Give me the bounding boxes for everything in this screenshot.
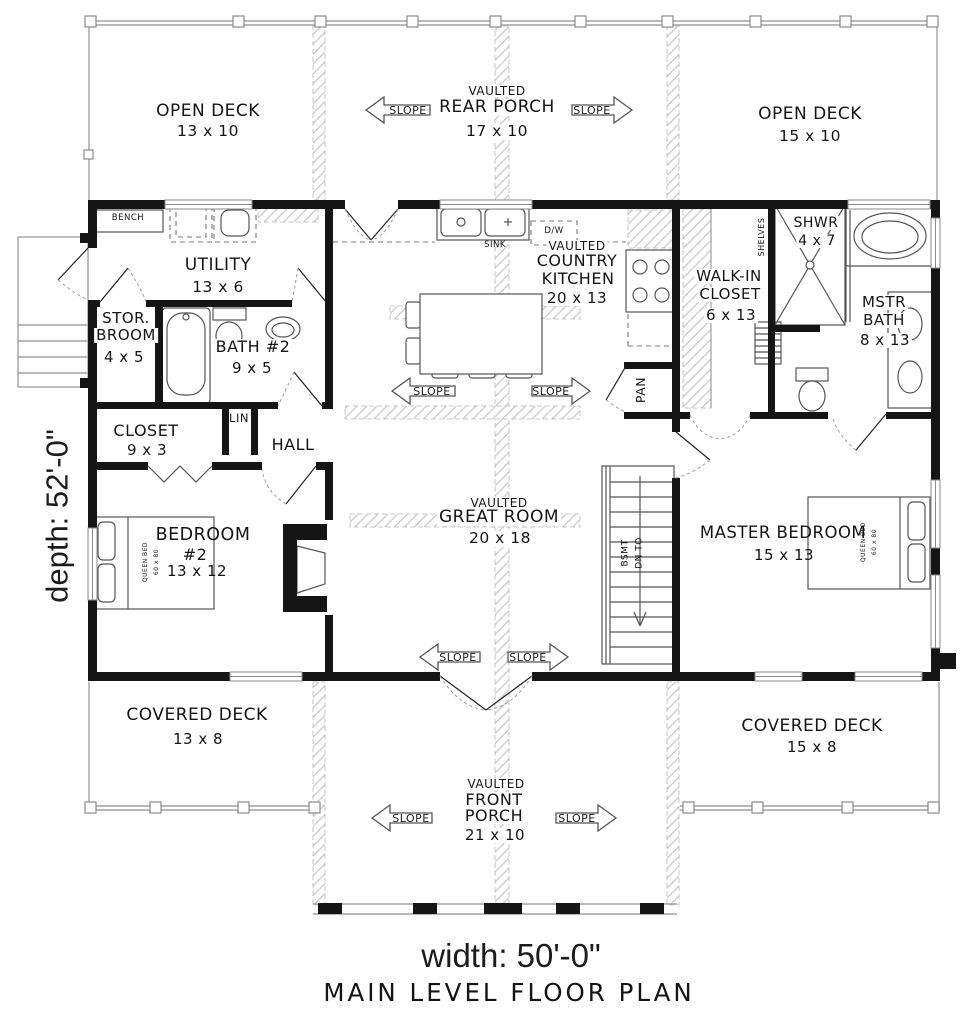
label-open-deck-left: OPEN DECK: [154, 103, 262, 120]
label-bedroom2-line1: BEDROOM: [156, 527, 251, 545]
label-open-deck-left-size: 13 x 10: [175, 124, 241, 140]
label-hall: HALL: [270, 437, 317, 453]
pantry-door-icon: [606, 366, 626, 400]
bathtub-icon: [162, 308, 210, 404]
label-walkin-line2: CLOSET: [697, 287, 762, 302]
label-covered-deck-left: COVERED DECK: [124, 707, 269, 724]
slope-label: SLOPE: [413, 385, 450, 398]
slope-label: SLOPE: [509, 651, 546, 664]
bed-note-line1: QUEEN BED: [859, 522, 870, 562]
label-front-porch-size: 21 x 10: [463, 828, 527, 843]
slope-label: SLOPE: [573, 104, 610, 117]
stairs-note-line2: DN TO: [633, 537, 647, 569]
label-shower: SHWR: [792, 216, 841, 230]
label-stor-size: 4 x 5: [102, 350, 146, 365]
label-stairs: BSMT DN TO: [619, 537, 648, 569]
toilet-icon: [213, 308, 246, 320]
chair-icon: [406, 338, 421, 364]
stairs-note-line1: BSMT: [619, 537, 633, 569]
label-bedroom2-size: 13 x 12: [167, 564, 227, 579]
label-bench: BENCH: [112, 214, 144, 223]
label-utility-size: 13 x 6: [190, 280, 246, 296]
label-mstr-bath-line1: MSTR: [860, 295, 908, 310]
label-front-porch-prefix: VAULTED: [465, 778, 526, 790]
label-closet: CLOSET: [111, 423, 180, 439]
label-walkin-size: 6 x 13: [704, 308, 758, 323]
label-rear-porch-size: 17 x 10: [464, 124, 530, 140]
label-master-bed-note: QUEEN BED 60 x 80: [859, 522, 881, 562]
slope-label: SLOPE: [389, 104, 426, 117]
label-mstr-bath-size: 8 x 13: [858, 333, 912, 348]
kitchen-sink-icon: [437, 206, 529, 240]
label-rear-porch-prefix: VAULTED: [466, 85, 527, 97]
slope-label: SLOPE: [558, 812, 595, 825]
label-stor-line2: BROOM: [94, 328, 158, 343]
label-great-room-size: 20 x 18: [467, 531, 533, 547]
label-master-bedroom: MASTER BEDROOM: [700, 525, 866, 542]
label-bed2-note: QUEEN BED 60 x 80: [141, 542, 163, 582]
rear-door-icon: [345, 209, 371, 240]
label-great-room: GREAT ROOM: [437, 509, 561, 526]
label-stor-line1: STOR.: [100, 311, 152, 326]
chair-icon: [406, 302, 421, 328]
doors: [58, 209, 886, 710]
label-walkin-line1: WALK-IN: [694, 269, 763, 284]
label-bedroom2-line2: #2: [183, 547, 208, 563]
side-door-icon: [58, 248, 88, 280]
range-icon: [626, 250, 678, 312]
dining-table-icon: [420, 294, 542, 374]
depth-dimension-label: depth: 52'-0": [42, 429, 73, 603]
label-dishwasher: D/W: [544, 227, 563, 236]
label-linen: LIN: [229, 413, 249, 425]
label-kitchen-size: 20 x 13: [545, 291, 609, 306]
label-covered-deck-left-size: 13 x 8: [171, 732, 225, 747]
toilet-icon: [796, 368, 828, 381]
label-shelves: SHELVES: [758, 218, 766, 257]
label-open-deck-right: OPEN DECK: [756, 106, 864, 123]
front-door-icon: [440, 676, 486, 710]
bed-note-line2: 60 x 80: [870, 522, 881, 562]
label-rear-porch: REAR PORCH: [437, 99, 557, 116]
sink-icon: [898, 361, 922, 393]
floor-plan: SLOPE SLOPE SLOPE SLOPE SLOPE SLOPE SLOP…: [0, 0, 960, 1024]
label-kitchen-line1: COUNTRY: [535, 253, 620, 269]
bifold-door-icon: [148, 466, 212, 482]
label-sink: SINK: [484, 241, 506, 250]
label-front-porch-line2: PORCH: [463, 808, 525, 824]
label-shower-size: 4 x 7: [796, 234, 838, 248]
label-open-deck-right-size: 15 x 10: [777, 129, 843, 145]
label-mstr-bath-line2: BATH: [861, 313, 907, 328]
label-kitchen-line2: KITCHEN: [540, 271, 617, 287]
label-bath2-size: 9 x 5: [230, 361, 274, 376]
label-covered-deck-right: COVERED DECK: [739, 718, 884, 735]
slope-label: SLOPE: [439, 651, 476, 664]
label-master-bedroom-size: 15 x 13: [754, 548, 814, 563]
width-dimension-label: width: 50'-0": [421, 939, 600, 972]
label-bath2: BATH #2: [214, 339, 293, 355]
label-pantry: PAN: [635, 377, 648, 403]
bed-note-line1: QUEEN BED: [141, 542, 152, 582]
label-utility: UTILITY: [183, 257, 254, 274]
slope-label: SLOPE: [532, 385, 569, 398]
label-covered-deck-right-size: 15 x 8: [785, 740, 839, 755]
page-title: MAIN LEVEL FLOOR PLAN: [323, 981, 694, 1006]
label-closet-size: 9 x 3: [125, 443, 169, 458]
bed-note-line2: 60 x 80: [152, 542, 163, 582]
fireplace-icon: [297, 546, 325, 593]
slope-label: SLOPE: [392, 812, 429, 825]
